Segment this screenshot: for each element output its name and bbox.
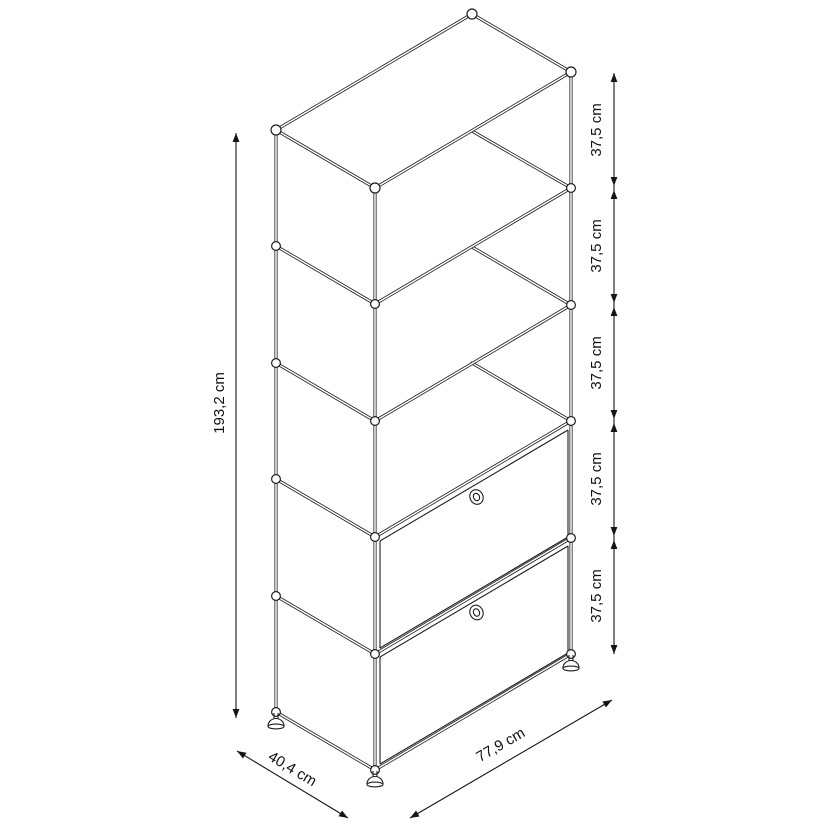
- ball-connector: [566, 67, 576, 77]
- ball-connector: [567, 417, 576, 426]
- ball-connector: [272, 592, 281, 601]
- shelving-unit-drawing: 193,2 cm 37,5 cm 37,5 cm 37,5 cm 37,5 cm…: [0, 0, 835, 835]
- ball-connector: [271, 125, 281, 135]
- background: [0, 0, 835, 835]
- segment-dimension-label: 37,5 cm: [588, 103, 605, 156]
- ball-connector: [567, 301, 576, 310]
- foot-base: [563, 666, 579, 671]
- segment-dimension-label: 37,5 cm: [588, 219, 605, 272]
- ball-connector: [567, 184, 576, 193]
- ball-connector: [272, 708, 281, 717]
- segment-dimension-label: 37,5 cm: [588, 569, 605, 622]
- ball-connector: [272, 359, 281, 368]
- ball-connector: [371, 417, 380, 426]
- foot-base: [367, 782, 383, 787]
- ball-connector: [567, 534, 576, 543]
- ball-connector: [272, 242, 281, 251]
- ball-connector: [371, 533, 380, 542]
- ball-connector: [370, 183, 380, 193]
- ball-connector: [371, 766, 380, 775]
- ball-connector: [467, 9, 477, 19]
- ball-connector: [272, 475, 281, 484]
- ball-connector: [371, 650, 380, 659]
- foot-base: [268, 724, 284, 729]
- ball-connector: [371, 300, 380, 309]
- segment-dimension-label: 37,5 cm: [588, 336, 605, 389]
- ball-connector: [567, 650, 576, 659]
- dimension-drawing-canvas: 193,2 cm 37,5 cm 37,5 cm 37,5 cm 37,5 cm…: [0, 0, 835, 835]
- height-dimension-label: 193,2 cm: [211, 372, 228, 434]
- segment-dimension-label: 37,5 cm: [588, 452, 605, 505]
